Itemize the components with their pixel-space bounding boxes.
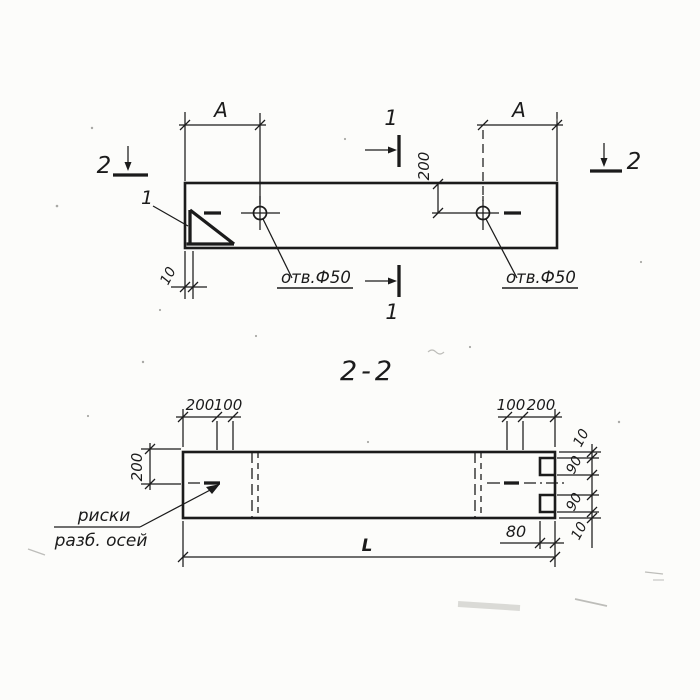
section-2-left-label: 2 xyxy=(97,153,112,179)
arrow-icon xyxy=(388,147,397,154)
dim-a-left: A xyxy=(179,98,266,204)
arrow-icon xyxy=(206,484,220,494)
dim-a-left-label: A xyxy=(212,98,228,122)
dim-200-plan-label: 200 xyxy=(415,152,433,181)
hole-left xyxy=(241,196,280,230)
dim-10-plan-label: 10 xyxy=(157,264,180,287)
arrow-icon xyxy=(125,162,132,171)
dim-10-top-label: 10 xyxy=(570,426,593,449)
section-2-right-label: 2 xyxy=(627,149,642,175)
dim-200-plan: 200 xyxy=(415,152,443,218)
dim-length: L xyxy=(178,521,560,567)
axis-note-line2: разб. осей xyxy=(54,531,148,551)
dim-chain-right: 10 90 90 10 xyxy=(557,426,601,548)
dim-10-plan: 10 xyxy=(157,251,207,299)
drawing-sheet: 1 A A 200 1 xyxy=(0,0,700,700)
corner-detail-triangle xyxy=(187,210,235,244)
axis-note-line1: риски xyxy=(77,506,131,526)
arrow-icon xyxy=(601,158,608,167)
hole-label-left: отв.Ф50 xyxy=(263,219,353,288)
plan-beam-outline xyxy=(185,183,557,248)
dim-a-right-label: A xyxy=(510,98,526,122)
hole-label-right-text: отв.Ф50 xyxy=(506,268,576,287)
dim-200-right-label: 200 xyxy=(527,396,556,414)
dim-top-left: 200 100 xyxy=(176,396,242,450)
section-mark-1-top: 1 xyxy=(365,106,399,167)
technical-drawing: 1 A A 200 1 xyxy=(0,0,700,700)
section-mark-2-left: 2 xyxy=(97,146,148,179)
dim-top-right: 100 200 xyxy=(497,396,562,450)
dim-length-label: L xyxy=(362,536,373,556)
detail-callout-label: 1 xyxy=(141,187,153,209)
dim-80-label: 80 xyxy=(506,522,526,541)
detail-callout-leader xyxy=(153,206,188,226)
notch-bottom xyxy=(540,495,556,512)
dim-200-left-label: 200 xyxy=(186,396,215,414)
arrow-icon xyxy=(388,278,397,285)
section-beam-outline xyxy=(183,452,555,518)
plan-view: 1 A A 200 1 xyxy=(97,98,642,324)
dim-100-left-label: 100 xyxy=(214,396,243,414)
hole-label-left-text: отв.Ф50 xyxy=(281,268,351,287)
dim-90-top-label: 90 xyxy=(563,453,586,476)
dim-80: 80 xyxy=(500,521,564,567)
section-mark-2-right: 2 xyxy=(590,143,641,175)
section-1-bottom-label: 1 xyxy=(385,300,398,324)
section-1-top-label: 1 xyxy=(384,106,397,130)
dim-a-right: A xyxy=(477,98,563,201)
dim-100-right-label: 100 xyxy=(497,396,526,414)
section-mark-1-bottom: 1 xyxy=(365,265,399,324)
notch-top xyxy=(540,458,556,475)
dim-90-bottom-label: 90 xyxy=(563,490,586,513)
section-view: 2-2 200 100 xyxy=(54,356,601,567)
section-title: 2-2 xyxy=(340,356,396,387)
dim-200-height: 200 xyxy=(128,443,181,490)
hole-label-right: отв.Ф50 xyxy=(486,219,578,288)
dim-200-height-label: 200 xyxy=(128,453,146,482)
